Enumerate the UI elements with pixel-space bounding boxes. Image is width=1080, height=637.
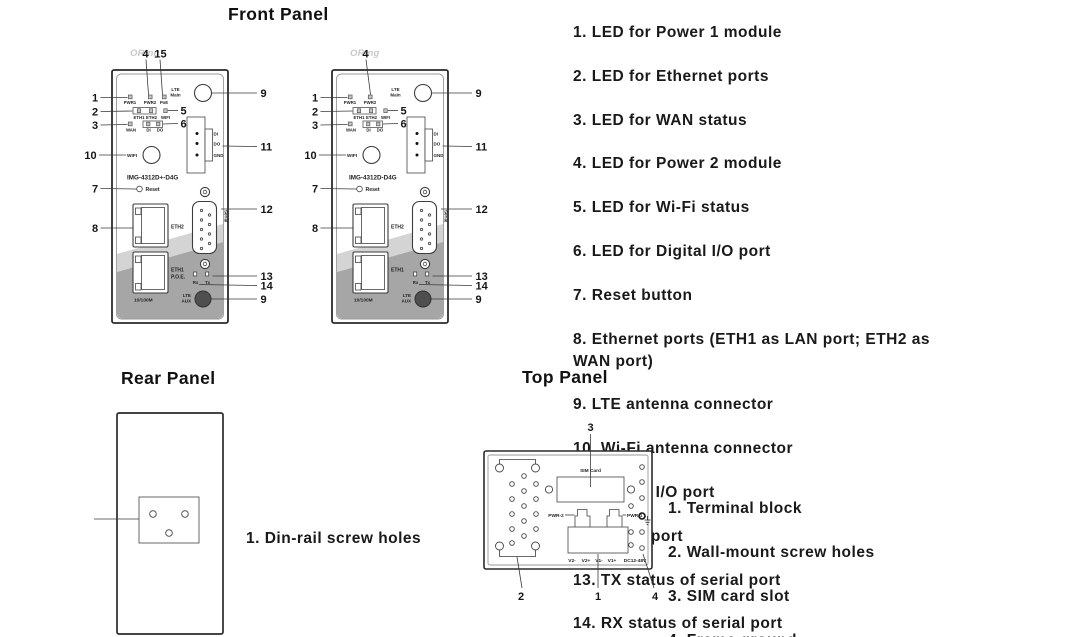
callout-1: 1 xyxy=(92,93,98,105)
di-label: DI xyxy=(146,128,150,133)
do-label: DO xyxy=(377,128,384,133)
callout-8: 8 xyxy=(92,223,98,235)
legend-item: 8. Ethernet ports (ETH1 as LAN port; ETH… xyxy=(573,329,930,373)
lte-aux-antenna-connector xyxy=(415,291,431,307)
eth2-led xyxy=(369,109,372,113)
callout-10: 10 xyxy=(304,150,316,162)
wifi-led-label: WIFI xyxy=(161,115,170,120)
front-panel-title: Front Panel xyxy=(228,4,329,25)
device-img-4312d-plus-d4g: ORing LTE Main PWR1 PWR2 PoE ETH1 ETH2 W… xyxy=(84,48,273,323)
serial-label: Serial xyxy=(224,210,229,222)
poe-label: PoE xyxy=(160,100,168,105)
do-led xyxy=(157,122,160,126)
callout-5: 5 xyxy=(401,106,407,118)
reset-button xyxy=(137,186,143,192)
callout-9: 9 xyxy=(476,88,482,100)
rear-panel-drawing xyxy=(80,400,248,637)
callout-3: 3 xyxy=(312,120,318,132)
callout-7: 7 xyxy=(92,184,98,196)
do-port-label: DO xyxy=(434,142,441,147)
lte-main-antenna-connector xyxy=(415,85,432,102)
lte-aux-label: AUX xyxy=(401,299,411,304)
lte-main-antenna-connector xyxy=(195,85,212,102)
rear-panel-title: Rear Panel xyxy=(121,368,215,389)
callout-4: 4 xyxy=(652,591,659,603)
callout-2: 2 xyxy=(92,107,98,119)
wifi-led xyxy=(384,109,387,113)
device-img-4312d-d4g: ORing LTE Main PWR1 PWR2 ETH1 ETH2 WIFI … xyxy=(304,48,488,323)
callout-12: 12 xyxy=(261,204,273,216)
pwr2-label: PWR2 xyxy=(364,100,377,105)
rx-status-led xyxy=(414,272,417,276)
terminal-block xyxy=(568,527,628,553)
dc-input-label: DC12-48V xyxy=(624,558,647,564)
pwr2-led xyxy=(368,95,372,99)
wan-label: WAN xyxy=(126,128,136,133)
speed-label: 10/100M xyxy=(354,298,373,304)
callout-9: 9 xyxy=(261,294,267,306)
callout-3: 3 xyxy=(587,422,593,434)
front-panel-drawing: ORing LTE Main PWR1 PWR2 PoE ETH1 ETH2 W… xyxy=(0,38,540,338)
legend-item: 3. LED for WAN status xyxy=(573,110,930,132)
eth2-port-label: ETH2 xyxy=(391,225,404,231)
callout-2: 2 xyxy=(312,107,318,119)
digital-io-port xyxy=(187,117,205,173)
pwr1-led xyxy=(348,95,352,99)
eth1-port-label: ETH1 xyxy=(391,268,404,274)
legend-item: 4. LED for Power 2 module xyxy=(573,153,930,175)
wan-led xyxy=(348,122,352,126)
wifi-led-label: WIFI xyxy=(381,115,390,120)
model-name: IMG-4312D-D4G xyxy=(349,175,397,182)
eth1-led xyxy=(137,109,140,113)
terminal-v1-plus: V1+ xyxy=(608,558,617,564)
tx-status-led xyxy=(426,272,429,276)
di-led xyxy=(147,122,150,126)
rx-label: Rx xyxy=(413,280,419,285)
callout-8: 8 xyxy=(312,223,318,235)
din-rail-screw-hole xyxy=(166,530,173,537)
gnd-port-label: GND xyxy=(434,153,445,158)
terminal-v2-plus: V2+ xyxy=(582,558,591,564)
lte-main-label: LTE xyxy=(171,87,179,92)
terminal-v2-minus: V2- xyxy=(568,558,576,564)
wifi-antenna-connector xyxy=(363,147,380,164)
callout-2: 2 xyxy=(518,591,524,603)
pwr2-led xyxy=(148,95,152,99)
do-label: DO xyxy=(157,128,164,133)
eth2-port-label: ETH2 xyxy=(171,225,184,231)
do-led xyxy=(377,122,380,126)
lte-aux-label: LTE xyxy=(183,293,191,298)
poe-led xyxy=(162,95,166,99)
tx-status-led xyxy=(206,272,209,276)
serial-label: Serial xyxy=(444,210,449,222)
din-rail-screw-hole xyxy=(182,511,189,518)
lte-aux-antenna-connector xyxy=(195,291,211,307)
callout-9: 9 xyxy=(476,294,482,306)
digital-io-port xyxy=(407,117,425,173)
callout-15: 15 xyxy=(154,49,166,61)
reset-label: Reset xyxy=(146,187,160,193)
screw-hole xyxy=(627,486,634,493)
pwr2-label: PWR2 xyxy=(144,100,157,105)
eth2-led xyxy=(149,109,152,113)
callout-11: 11 xyxy=(476,142,488,154)
callout-1: 1 xyxy=(312,93,318,105)
pwr1-label: PWR1 xyxy=(344,100,357,105)
callout-4: 4 xyxy=(142,49,149,61)
rx-label: Rx xyxy=(193,280,199,285)
manual-page: Front Panel Rear Panel Top Panel 1. LED … xyxy=(0,0,1080,637)
callout-14: 14 xyxy=(476,281,489,293)
reset-button xyxy=(357,186,363,192)
callout-14: 14 xyxy=(261,281,274,293)
legend-item: 5. LED for Wi-Fi status xyxy=(573,197,930,219)
pwr1-label: PWR1 xyxy=(124,100,137,105)
wan-led xyxy=(128,122,132,126)
callout-9: 9 xyxy=(261,88,267,100)
wan-label: WAN xyxy=(346,128,356,133)
callout-3: 3 xyxy=(92,120,98,132)
poe-sub-label: P.O.E. xyxy=(171,275,186,281)
lte-aux-label: AUX xyxy=(181,299,191,304)
eth1-led-label: ETH1 xyxy=(134,115,146,120)
wifi-antenna-label: WIFI xyxy=(127,153,138,159)
eth2-led-label: ETH2 xyxy=(146,115,158,120)
terminal-v1-minus: V1- xyxy=(595,558,603,564)
din-rail-screw-hole xyxy=(150,511,157,518)
callout-11: 11 xyxy=(261,142,273,154)
di-port-label: DI xyxy=(214,132,219,137)
callout-6: 6 xyxy=(401,119,407,131)
pwr2-label: PWR-2 xyxy=(548,513,564,519)
legend-item: 1. Din-rail screw holes xyxy=(246,528,421,550)
top-panel-drawing: SIM Card PWR-2 PWR-1 V2- V2+ V1- V1+ DC1… xyxy=(455,410,705,610)
callout-1: 1 xyxy=(595,591,601,603)
lte-aux-label: LTE xyxy=(403,293,411,298)
di-led xyxy=(367,122,370,126)
legend-item: 2. LED for Ethernet ports xyxy=(573,66,930,88)
eth2-led-label: ETH2 xyxy=(366,115,378,120)
wifi-antenna-label: WIFI xyxy=(347,153,358,159)
pwr1-led xyxy=(128,95,132,99)
screw-hole xyxy=(545,486,552,493)
eth1-led xyxy=(357,109,360,113)
eth1-led-label: ETH1 xyxy=(354,115,366,120)
callout-6: 6 xyxy=(181,119,187,131)
di-port-label: DI xyxy=(434,132,439,137)
legend-item: 6. LED for Digital I/O port xyxy=(573,241,930,263)
rear-panel-legend: 1. Din-rail screw holes xyxy=(246,506,421,572)
speed-label: 10/100M xyxy=(134,298,153,304)
lte-main-label: Main xyxy=(390,93,401,98)
di-label: DI xyxy=(366,128,370,133)
wifi-led xyxy=(164,109,167,113)
rx-status-led xyxy=(194,272,197,276)
lte-main-label: Main xyxy=(170,93,181,98)
legend-item: 7. Reset button xyxy=(573,285,930,307)
pwr1-label: PWR-1 xyxy=(627,513,643,519)
wifi-antenna-connector xyxy=(143,147,160,164)
do-port-label: DO xyxy=(214,142,221,147)
legend-item: 4. Frame ground xyxy=(668,630,875,637)
lte-main-label: LTE xyxy=(391,87,399,92)
gnd-port-label: GND xyxy=(214,153,225,158)
callout-10: 10 xyxy=(84,150,96,162)
reset-label: Reset xyxy=(366,187,380,193)
callout-12: 12 xyxy=(476,204,488,216)
eth1-port-label: ETH1 xyxy=(171,268,184,274)
legend-item: 1. LED for Power 1 module xyxy=(573,22,930,44)
callout-7: 7 xyxy=(312,184,318,196)
callout-4: 4 xyxy=(362,49,369,61)
model-name: IMG-4312D+-D4G xyxy=(127,175,178,182)
callout-5: 5 xyxy=(181,106,187,118)
